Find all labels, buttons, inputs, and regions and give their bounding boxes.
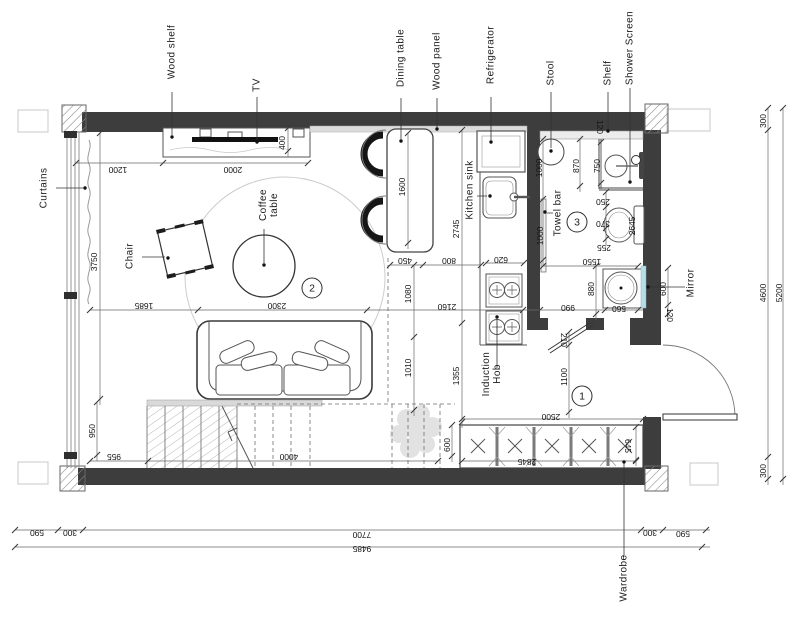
dim-120-shelf: 120: [595, 120, 605, 134]
label-kitchen-sink: Kitchen sink: [465, 160, 476, 219]
label-wood-shelf: Wood shelf: [167, 25, 178, 79]
dim-1550: 1550: [583, 257, 602, 267]
dining-chair: [362, 130, 386, 244]
window-wall: [64, 131, 90, 468]
zone-marker-3: 3: [567, 212, 588, 233]
sofa: [197, 321, 372, 399]
dim-3750: 3750: [89, 253, 99, 272]
dim-1200: 1200: [109, 165, 128, 175]
window-mullion: [64, 452, 77, 459]
dim-645: 645: [623, 439, 633, 453]
label-chair: Chair: [125, 243, 136, 269]
label-curtains: Curtains: [39, 168, 50, 209]
dim-1000-towel: 1000: [535, 227, 545, 246]
dim-2645: 2645: [627, 217, 637, 236]
dim-560: 560: [612, 304, 626, 314]
window-mullion: [64, 292, 77, 299]
dim-990: 990: [561, 303, 575, 313]
dim-255: 255: [597, 243, 611, 253]
dim-880: 880: [586, 282, 596, 296]
washbasin: [603, 269, 643, 308]
label-induction-hob: Induction Hob: [481, 352, 503, 397]
dim-1080: 1080: [403, 285, 413, 304]
dim-4000: 4000: [280, 452, 299, 462]
dim-300-bottom-right: 300: [643, 528, 657, 538]
label-wood-panel: Wood panel: [432, 32, 443, 90]
dim-300-right-top: 300: [758, 114, 768, 128]
dim-1010: 1010: [403, 359, 413, 378]
dim-1685: 1685: [135, 301, 154, 311]
label-mirror: Mirror: [686, 269, 697, 298]
dim-1355: 1355: [451, 367, 461, 386]
window-mullion: [64, 131, 77, 138]
dim-1600: 1600: [397, 178, 407, 197]
label-shelf: Shelf: [603, 60, 614, 85]
kitchen: [477, 131, 530, 345]
dim-2745: 2745: [451, 220, 461, 239]
floor-plan-drawing: [0, 0, 803, 640]
refrigerator: [477, 131, 525, 172]
armchair: [156, 219, 214, 279]
bath-shelf: [540, 131, 643, 139]
induction-hob: [486, 274, 522, 344]
entry-door: [663, 345, 737, 420]
dim-750: 750: [592, 159, 602, 173]
dim-600-wardrobe: 600: [442, 438, 452, 452]
label-refrigerator: Refrigerator: [486, 26, 497, 84]
dim-4600: 4600: [758, 284, 768, 303]
dim-9485: 9485: [353, 544, 372, 554]
tv: [192, 137, 278, 142]
label-tv: TV: [252, 78, 263, 92]
dim-370: 370: [596, 219, 610, 229]
dim-590-bottom-right: 590: [676, 529, 690, 539]
mirror: [641, 266, 646, 308]
dim-2500: 2500: [542, 412, 561, 422]
dim-400: 400: [277, 136, 287, 150]
dim-250: 250: [596, 197, 610, 207]
dim-950: 950: [87, 424, 97, 438]
curtain-wave: [88, 140, 90, 304]
zone-marker-1: 1: [572, 386, 593, 407]
zone-marker-2: 2: [302, 278, 323, 299]
dim-620: 620: [494, 255, 508, 265]
dim-1100: 1100: [559, 368, 569, 386]
dim-600-mirror: 600: [658, 282, 668, 296]
dim-870: 870: [571, 159, 581, 173]
dim-120-mirror: 120: [665, 308, 675, 322]
shower-basin: [605, 152, 644, 179]
dim-2300: 2300: [268, 301, 287, 311]
dim-210: 210: [559, 333, 569, 347]
label-towel-bar: Towel bar: [553, 190, 564, 237]
dim-590-bottom-left: 590: [30, 528, 44, 538]
dim-7700: 7700: [353, 530, 372, 540]
plant: [390, 405, 442, 458]
dim-5200: 5200: [774, 284, 784, 303]
dim-450: 450: [398, 256, 412, 266]
dim-2160: 2160: [438, 302, 457, 312]
dim-300-right-bottom: 300: [758, 464, 768, 478]
floor-plan-page: Wood shelf TV Dining table Wood panel Re…: [0, 0, 803, 640]
dim-2845: 2845: [518, 457, 537, 467]
label-wardrobe: Wardrobe: [619, 554, 630, 601]
label-dining-table: Dining table: [396, 29, 407, 87]
label-stool: Stool: [546, 60, 557, 85]
label-shower-screen: Shower Screen: [625, 11, 636, 85]
dim-800: 800: [442, 256, 456, 266]
dim-955: 955: [107, 452, 121, 462]
dim-2000: 2000: [224, 165, 243, 175]
dim-1000-stool: 1000: [534, 159, 544, 178]
wardrobe: [460, 425, 643, 468]
dim-300-bottom-left: 300: [63, 528, 77, 538]
label-coffee-table: Coffee table: [258, 189, 280, 221]
toilet: [604, 206, 644, 244]
